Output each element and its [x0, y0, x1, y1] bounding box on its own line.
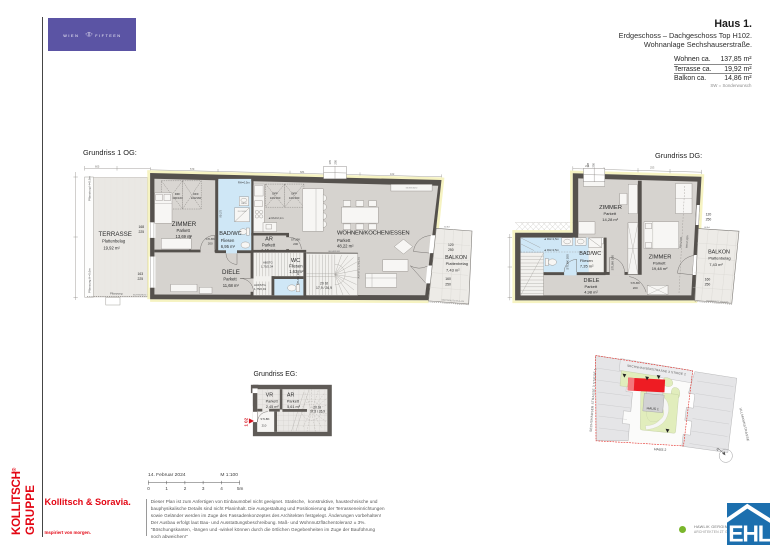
- svg-text:250: 250: [448, 248, 454, 252]
- svg-text:200: 200: [293, 242, 298, 246]
- svg-text:128: 128: [586, 162, 590, 167]
- svg-text:5,61 m²: 5,61 m²: [287, 405, 301, 409]
- svg-text:BAD/WC: BAD/WC: [219, 231, 241, 237]
- svg-text:1,63 m²: 1,63 m²: [289, 269, 304, 274]
- svg-text:200: 200: [208, 242, 213, 246]
- svg-text:100/160: 100/160: [270, 196, 281, 200]
- svg-text:6,95 m²: 6,95 m²: [221, 244, 236, 249]
- svg-text:250: 250: [445, 282, 451, 286]
- svg-text:Parkett: Parkett: [603, 211, 617, 216]
- svg-text:100/160: 100/160: [191, 196, 202, 200]
- svg-text:STLBK: STLBK: [630, 281, 640, 285]
- svg-text:90/170: 90/170: [220, 210, 223, 218]
- svg-text:Parkett: Parkett: [287, 399, 300, 403]
- svg-text:225: 225: [139, 230, 145, 234]
- svg-text:GL/Bef: GL/Bef: [444, 227, 450, 229]
- svg-text:250: 250: [334, 159, 338, 164]
- svg-text:48,22 m²: 48,22 m²: [337, 243, 354, 248]
- svg-text:170: 170: [328, 159, 332, 164]
- svg-text:210: 210: [262, 423, 267, 427]
- svg-text:Parkett: Parkett: [262, 242, 276, 247]
- svg-text:GL/Bef: GL/Bef: [704, 227, 710, 229]
- svg-text:STLBK 200: STLBK 200: [565, 254, 569, 270]
- svg-text:200: 200: [633, 286, 638, 290]
- svg-text:WASB: WASB: [241, 202, 247, 205]
- svg-text:AR: AR: [287, 392, 295, 398]
- svg-text:19,92 m²: 19,92 m²: [103, 245, 120, 250]
- svg-text:HAUS 2: HAUS 2: [654, 447, 667, 452]
- svg-text:13,69 m²: 13,69 m²: [176, 234, 193, 239]
- svg-text:168: 168: [139, 225, 145, 229]
- svg-text:RH=2,12m: RH=2,12m: [685, 235, 690, 248]
- svg-text:11,68 m²: 11,68 m²: [223, 283, 240, 288]
- svg-text:Parkett: Parkett: [177, 228, 191, 233]
- svg-text:19,48 m²: 19,48 m²: [652, 266, 668, 271]
- svg-text:Pflanzung: Pflanzung: [110, 292, 123, 296]
- svg-text:253: 253: [650, 166, 655, 170]
- svg-text:120: 120: [448, 243, 454, 247]
- svg-text:250: 250: [592, 162, 596, 167]
- svg-text:14,28 m²: 14,28 m²: [602, 217, 618, 222]
- svg-text:160: 160: [445, 277, 451, 281]
- svg-text:GELÄNDER: GELÄNDER: [328, 250, 340, 253]
- svg-text:120: 120: [706, 212, 712, 216]
- svg-text:579: 579: [190, 167, 195, 171]
- svg-text:◄ RH=2,5m: ◄ RH=2,5m: [544, 248, 560, 252]
- svg-text:684: 684: [300, 170, 305, 174]
- svg-text:163: 163: [138, 272, 144, 276]
- svg-text:Parkett: Parkett: [584, 284, 598, 289]
- svg-text:7,43 m²: 7,43 m²: [709, 262, 723, 267]
- svg-text:DU 90/90: DU 90/90: [238, 211, 247, 213]
- svg-text:100/160: 100/160: [289, 196, 300, 200]
- svg-text:605: 605: [95, 164, 100, 168]
- svg-text:250: 250: [705, 283, 711, 287]
- svg-text:1,75/2,91: 1,75/2,91: [254, 287, 266, 291]
- svg-text:RH=0,5m: RH=0,5m: [238, 180, 251, 184]
- svg-text:250: 250: [706, 218, 712, 222]
- svg-text:WOHNEN/KOCHEN/ESSEN: WOHNEN/KOCHEN/ESSEN: [337, 230, 409, 236]
- svg-text:102: 102: [390, 172, 395, 176]
- svg-text:BAD/WC: BAD/WC: [579, 251, 601, 257]
- svg-text:17,5 / 26,9: 17,5 / 26,9: [310, 409, 325, 413]
- svg-text:Fliesen: Fliesen: [580, 258, 593, 263]
- svg-text:◄ RH=1,5m: ◄ RH=1,5m: [544, 237, 560, 241]
- svg-text:Parkett: Parkett: [337, 238, 351, 243]
- svg-text:Fliesen: Fliesen: [221, 238, 235, 243]
- svg-text:ZIMMER: ZIMMER: [599, 205, 622, 211]
- svg-text:7,35 m²: 7,35 m²: [580, 264, 594, 269]
- svg-text:ZIMMER: ZIMMER: [649, 254, 672, 260]
- svg-text:Plattenbelag: Plattenbelag: [102, 239, 126, 244]
- svg-text:Plattenbelag: Plattenbelag: [708, 256, 730, 261]
- svg-text:Pflanztrog H=0,6m: Pflanztrog H=0,6m: [88, 176, 92, 201]
- svg-text:STLBK: STLBK: [260, 417, 269, 421]
- svg-text:17,9 / 26,9: 17,9 / 26,9: [316, 286, 332, 290]
- svg-text:STLBK 200: STLBK 200: [610, 255, 614, 271]
- svg-text:Parkett: Parkett: [266, 399, 279, 403]
- svg-text:Plattenbelag: Plattenbelag: [446, 261, 468, 266]
- svg-text:VR: VR: [266, 392, 274, 398]
- svg-text:1,75/2,34: 1,75/2,34: [261, 265, 273, 269]
- svg-text:TERRASSE: TERRASSE: [99, 231, 132, 238]
- svg-text:ULLMANNSTRASSE: ULLMANNSTRASSE: [739, 407, 751, 441]
- svg-text:Parkett: Parkett: [223, 277, 237, 282]
- svg-text:RH=2,5m: RH=2,5m: [678, 237, 683, 248]
- svg-text:◄ RH=2,1m: ◄ RH=2,1m: [268, 216, 284, 220]
- svg-text:ZIMMER: ZIMMER: [172, 221, 197, 228]
- svg-text:DIELE: DIELE: [222, 269, 240, 276]
- svg-text:100/160: 100/160: [172, 196, 183, 200]
- svg-text:7,43 m²: 7,43 m²: [446, 267, 460, 272]
- svg-text:2,45 m²: 2,45 m²: [266, 405, 280, 409]
- svg-text:1 02: 1 02: [244, 417, 249, 426]
- svg-text:SIDEBOARD: SIDEBOARD: [406, 187, 418, 190]
- svg-text:Pflanzung H=0,6m: Pflanzung H=0,6m: [88, 268, 92, 293]
- svg-text:4,98 m²: 4,98 m²: [584, 289, 598, 294]
- svg-text:STLBK: STLBK: [205, 237, 215, 241]
- svg-text:160: 160: [705, 277, 711, 281]
- svg-text:225: 225: [138, 277, 144, 281]
